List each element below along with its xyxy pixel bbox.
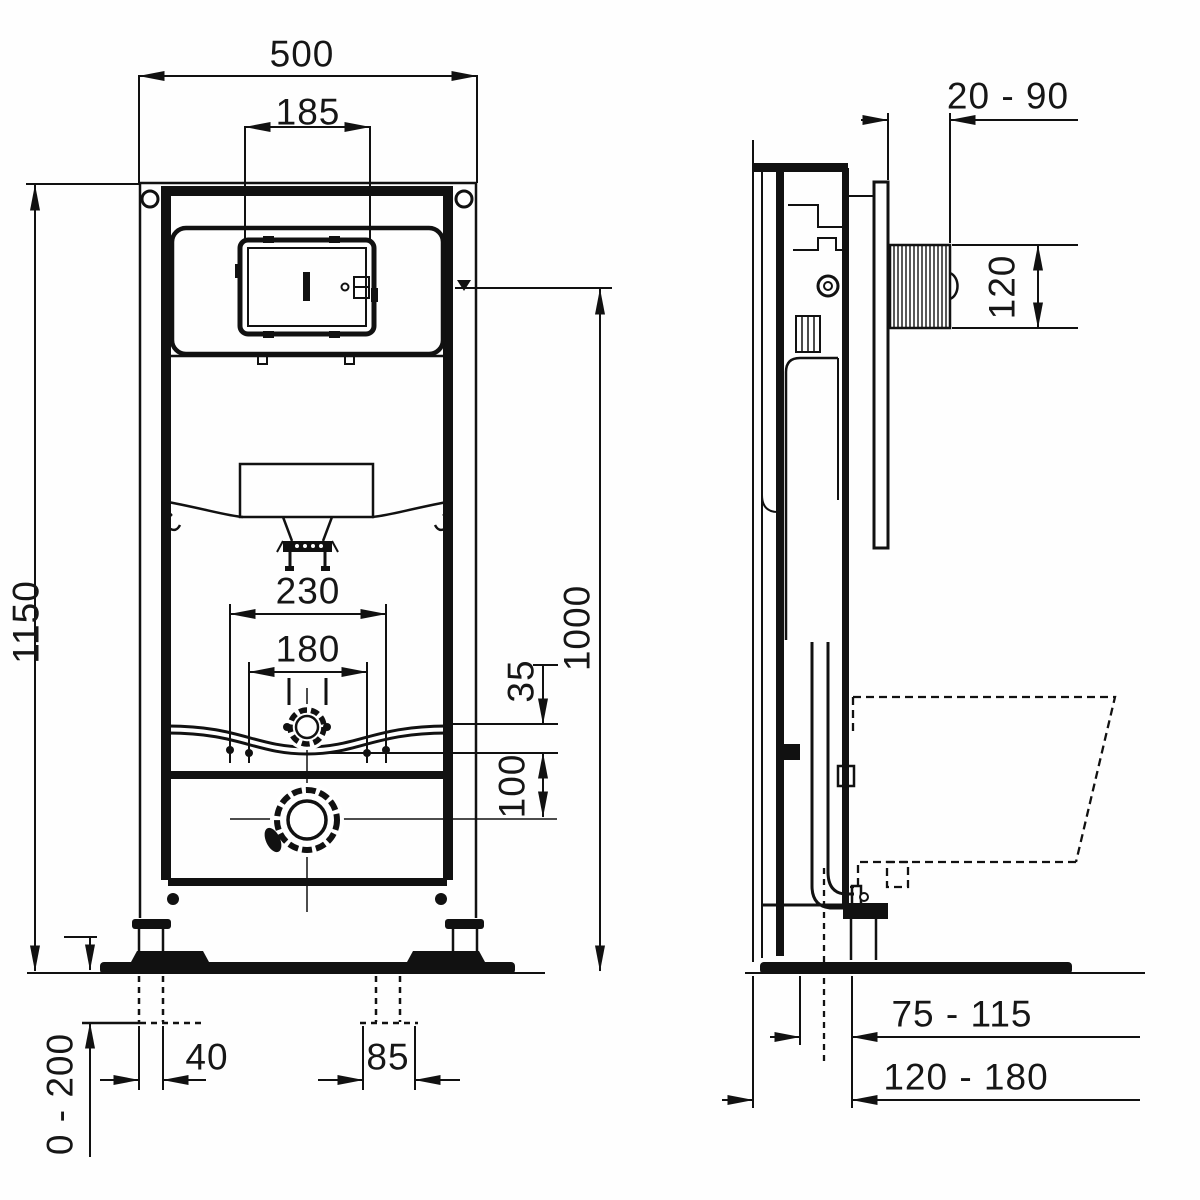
side-base-plate bbox=[760, 962, 1072, 974]
middle-rail bbox=[168, 771, 447, 779]
side-frame-profile bbox=[753, 140, 888, 962]
support-feet bbox=[131, 919, 485, 962]
side-view bbox=[722, 113, 1145, 1108]
dim-fixing-inner-label: 180 bbox=[276, 631, 341, 668]
dim-shaft-height-label: 120 bbox=[984, 255, 1021, 320]
dim-floor-adjust-label: 0 - 200 bbox=[42, 1033, 79, 1155]
dim-front-width-label: 500 bbox=[270, 36, 335, 73]
flush-shaft-hatch bbox=[890, 245, 958, 328]
upper-rail bbox=[168, 356, 447, 364]
flush-plate-window bbox=[235, 236, 378, 338]
mounting-hole-right bbox=[456, 191, 472, 207]
adjust-screw-right bbox=[435, 893, 447, 905]
base-plate bbox=[100, 962, 515, 974]
front-dimension-lines bbox=[26, 75, 612, 1157]
side-tank-and-pipe bbox=[784, 358, 888, 960]
dim-flush-plate-width-label: 185 bbox=[276, 94, 341, 131]
lower-rail bbox=[168, 878, 447, 886]
toilet-bowl-hidden-outline bbox=[850, 697, 1115, 887]
side-fill-valve-mechanism bbox=[793, 238, 842, 352]
side-dimension-lines bbox=[722, 113, 1140, 1108]
reference-marker bbox=[457, 280, 471, 291]
dim-drain-distance-label: 75 - 115 bbox=[891, 996, 1032, 1033]
mounting-hole-left bbox=[142, 191, 158, 207]
dim-outlet-offset-label: 100 bbox=[494, 754, 531, 819]
adjust-screw-left bbox=[167, 893, 179, 905]
dim-inlet-offset-label: 35 bbox=[503, 659, 540, 702]
flush-bend-connector bbox=[283, 704, 331, 750]
dim-reference-height-label: 1000 bbox=[559, 585, 596, 671]
waste-outlet bbox=[261, 783, 344, 857]
dim-depth-distance-label: 120 - 180 bbox=[883, 1059, 1048, 1096]
technical-drawing: 500 185 1150 230 180 35 100 1000 40 85 0… bbox=[0, 0, 1200, 1200]
dim-wall-distance-label: 20 - 90 bbox=[947, 78, 1069, 115]
dim-foot-right-offset-label: 85 bbox=[366, 1039, 409, 1076]
dim-foot-left-offset-label: 40 bbox=[185, 1039, 228, 1076]
dim-fixing-outer-label: 230 bbox=[276, 573, 341, 610]
dim-frame-height-label: 1150 bbox=[8, 580, 45, 664]
front-view bbox=[26, 75, 612, 1157]
